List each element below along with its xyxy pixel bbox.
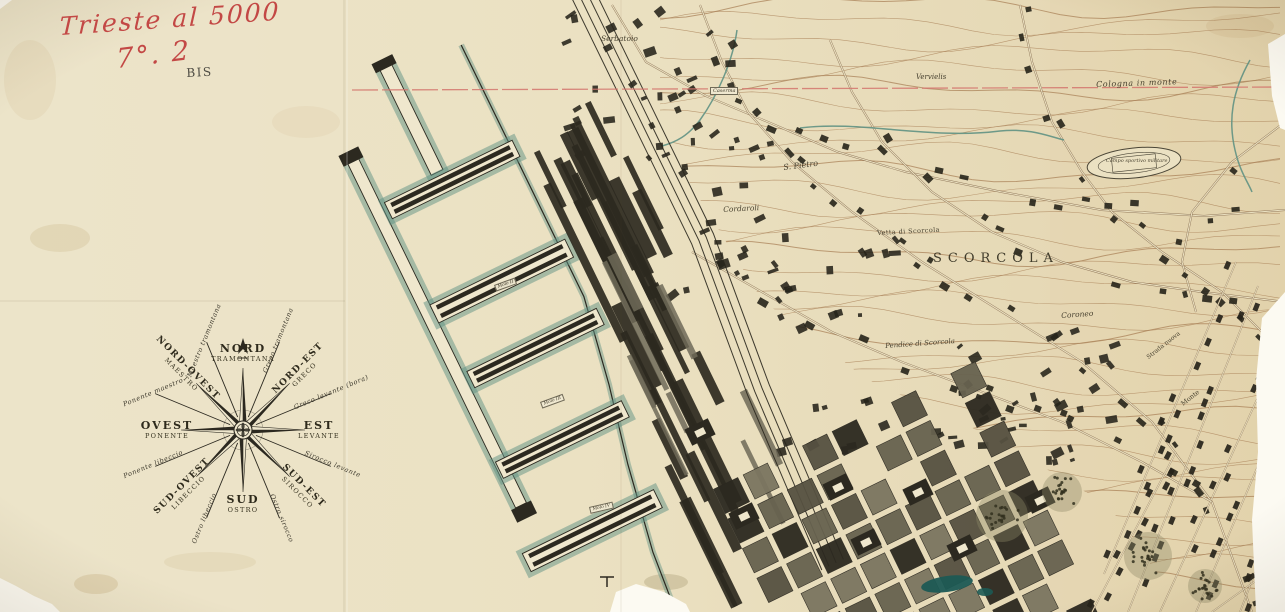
compass-wind-w: PONENTE xyxy=(145,432,189,440)
map-canvas: NORD TRAMONTANA SUD OSTRO EST LEVANTE OV… xyxy=(0,0,1285,612)
compass-label-w: OVEST xyxy=(141,419,193,432)
compass-label-e: EST xyxy=(304,419,335,432)
compass-label-n: NORD xyxy=(220,342,266,355)
compass-wind-e: LEVANTE xyxy=(298,432,340,440)
compass-label-s: SUD xyxy=(226,493,259,506)
vignette xyxy=(0,0,1285,612)
scanned-map-sheet: NORD TRAMONTANA SUD OSTRO EST LEVANTE OV… xyxy=(0,0,1285,612)
compass-wind-s: OSTRO xyxy=(228,506,259,514)
